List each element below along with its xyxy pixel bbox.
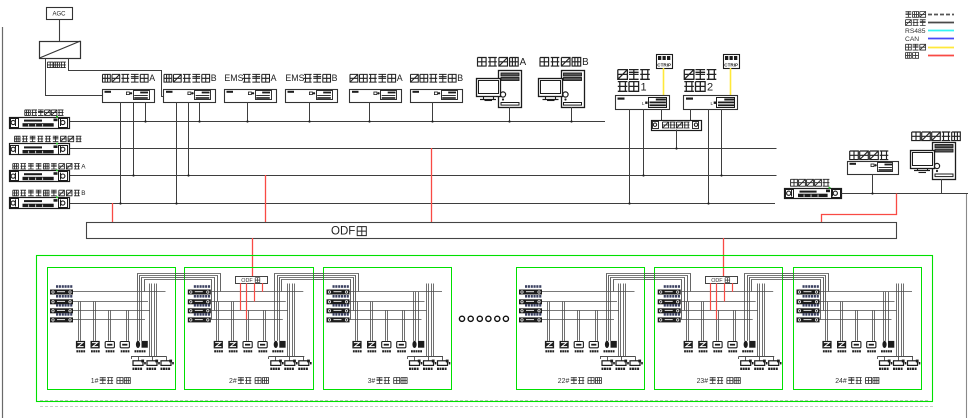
svg-text:B: B [457, 73, 463, 83]
svg-text:ODF: ODF [331, 226, 355, 238]
svg-text:A: A [271, 73, 277, 83]
svg-text:A: A [81, 163, 86, 170]
svg-text:2: 2 [707, 82, 713, 94]
svg-text:RS485: RS485 [905, 28, 926, 35]
svg-text:2#: 2# [229, 378, 237, 385]
svg-text:A: A [520, 57, 527, 68]
svg-text:A: A [397, 73, 403, 83]
svg-text:ODF: ODF [241, 278, 253, 284]
svg-text:AGC: AGC [52, 12, 66, 18]
svg-text:22#: 22# [558, 378, 570, 385]
svg-text:CTRIP: CTRIP [724, 63, 738, 68]
svg-text:EMS: EMS [285, 73, 304, 83]
svg-text:1#: 1# [91, 378, 99, 385]
svg-text:B: B [211, 73, 217, 83]
svg-text:ODF: ODF [711, 278, 723, 284]
svg-text:3#: 3# [368, 378, 376, 385]
svg-text:1: 1 [641, 82, 647, 94]
svg-text:CTRIP: CTRIP [657, 63, 671, 68]
svg-text:B: B [332, 73, 338, 83]
svg-text:B: B [81, 190, 85, 197]
svg-text:EMS: EMS [224, 73, 243, 83]
svg-text:23#: 23# [697, 378, 709, 385]
svg-text:24#: 24# [835, 378, 847, 385]
svg-text:CAN: CAN [905, 36, 919, 43]
svg-text:A: A [149, 73, 155, 83]
svg-text:B: B [582, 57, 589, 68]
